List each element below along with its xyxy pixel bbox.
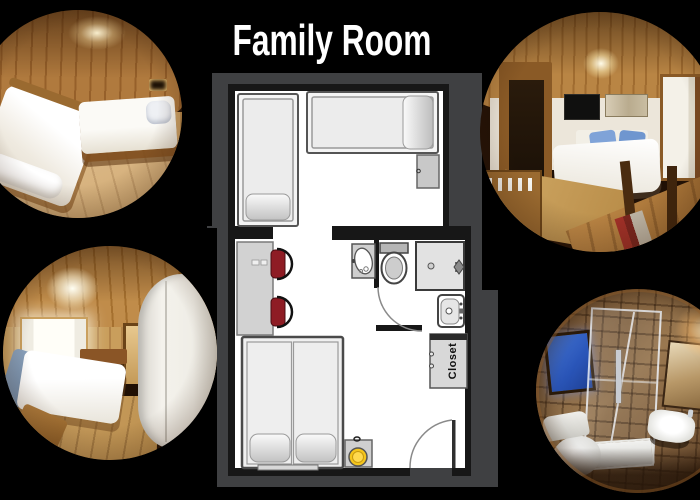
- fisheye-vignette: [3, 246, 217, 460]
- page-title: Family Room: [208, 16, 456, 66]
- single-bed-vertical: [238, 94, 298, 226]
- toilet: [380, 243, 408, 284]
- photo-double-bed-window-room: [3, 246, 217, 460]
- double-bed: [242, 337, 343, 470]
- nightstand: [417, 155, 439, 188]
- bedside-table-lamp: [345, 437, 372, 467]
- shower: [416, 242, 464, 290]
- single-bed-horizontal: [307, 92, 438, 153]
- closet-label: Closet: [447, 343, 459, 380]
- photo-double-bed-tv-room: [480, 12, 700, 252]
- washbasin: [438, 295, 464, 327]
- desk: [237, 242, 273, 335]
- family-room-collage: Closet: [0, 0, 700, 500]
- floor-plan: Closet: [207, 73, 503, 487]
- photo-twin-bed-room: [0, 10, 182, 218]
- closet: Closet: [430, 334, 468, 388]
- photo-bathroom-shower: [536, 289, 700, 493]
- vanity-sink: [352, 244, 376, 278]
